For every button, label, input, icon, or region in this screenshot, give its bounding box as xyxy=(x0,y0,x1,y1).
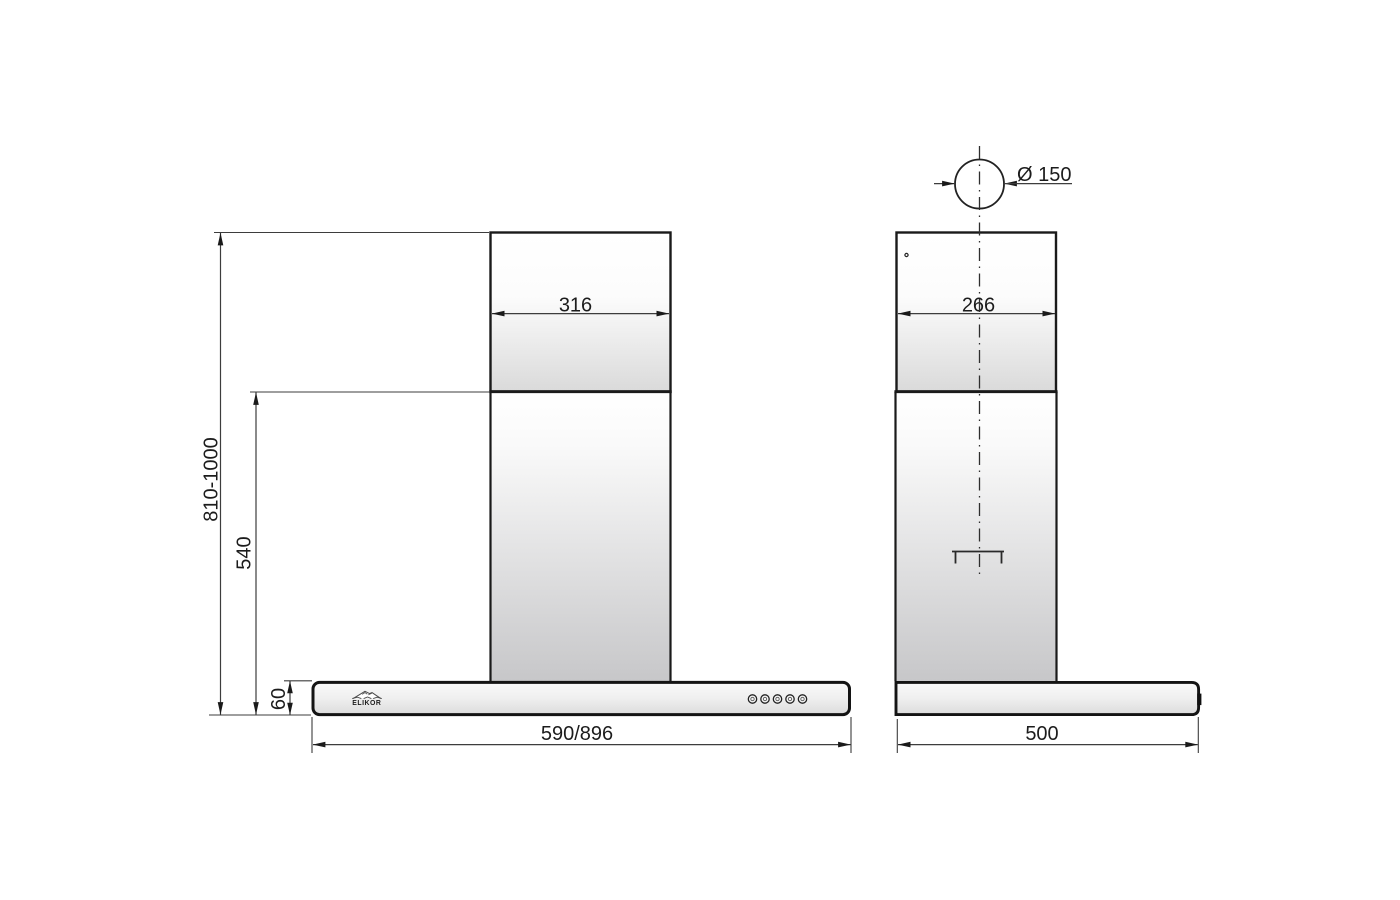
svg-text:ELIKOR: ELIKOR xyxy=(352,700,381,707)
svg-text:590/896: 590/896 xyxy=(541,723,613,745)
svg-text:60: 60 xyxy=(268,688,290,710)
svg-text:266: 266 xyxy=(962,295,995,317)
svg-text:Ø 150: Ø 150 xyxy=(1017,164,1071,186)
svg-text:500: 500 xyxy=(1025,723,1058,745)
svg-text:810-1000: 810-1000 xyxy=(201,437,223,522)
svg-text:540: 540 xyxy=(234,536,256,569)
svg-text:316: 316 xyxy=(559,295,592,317)
